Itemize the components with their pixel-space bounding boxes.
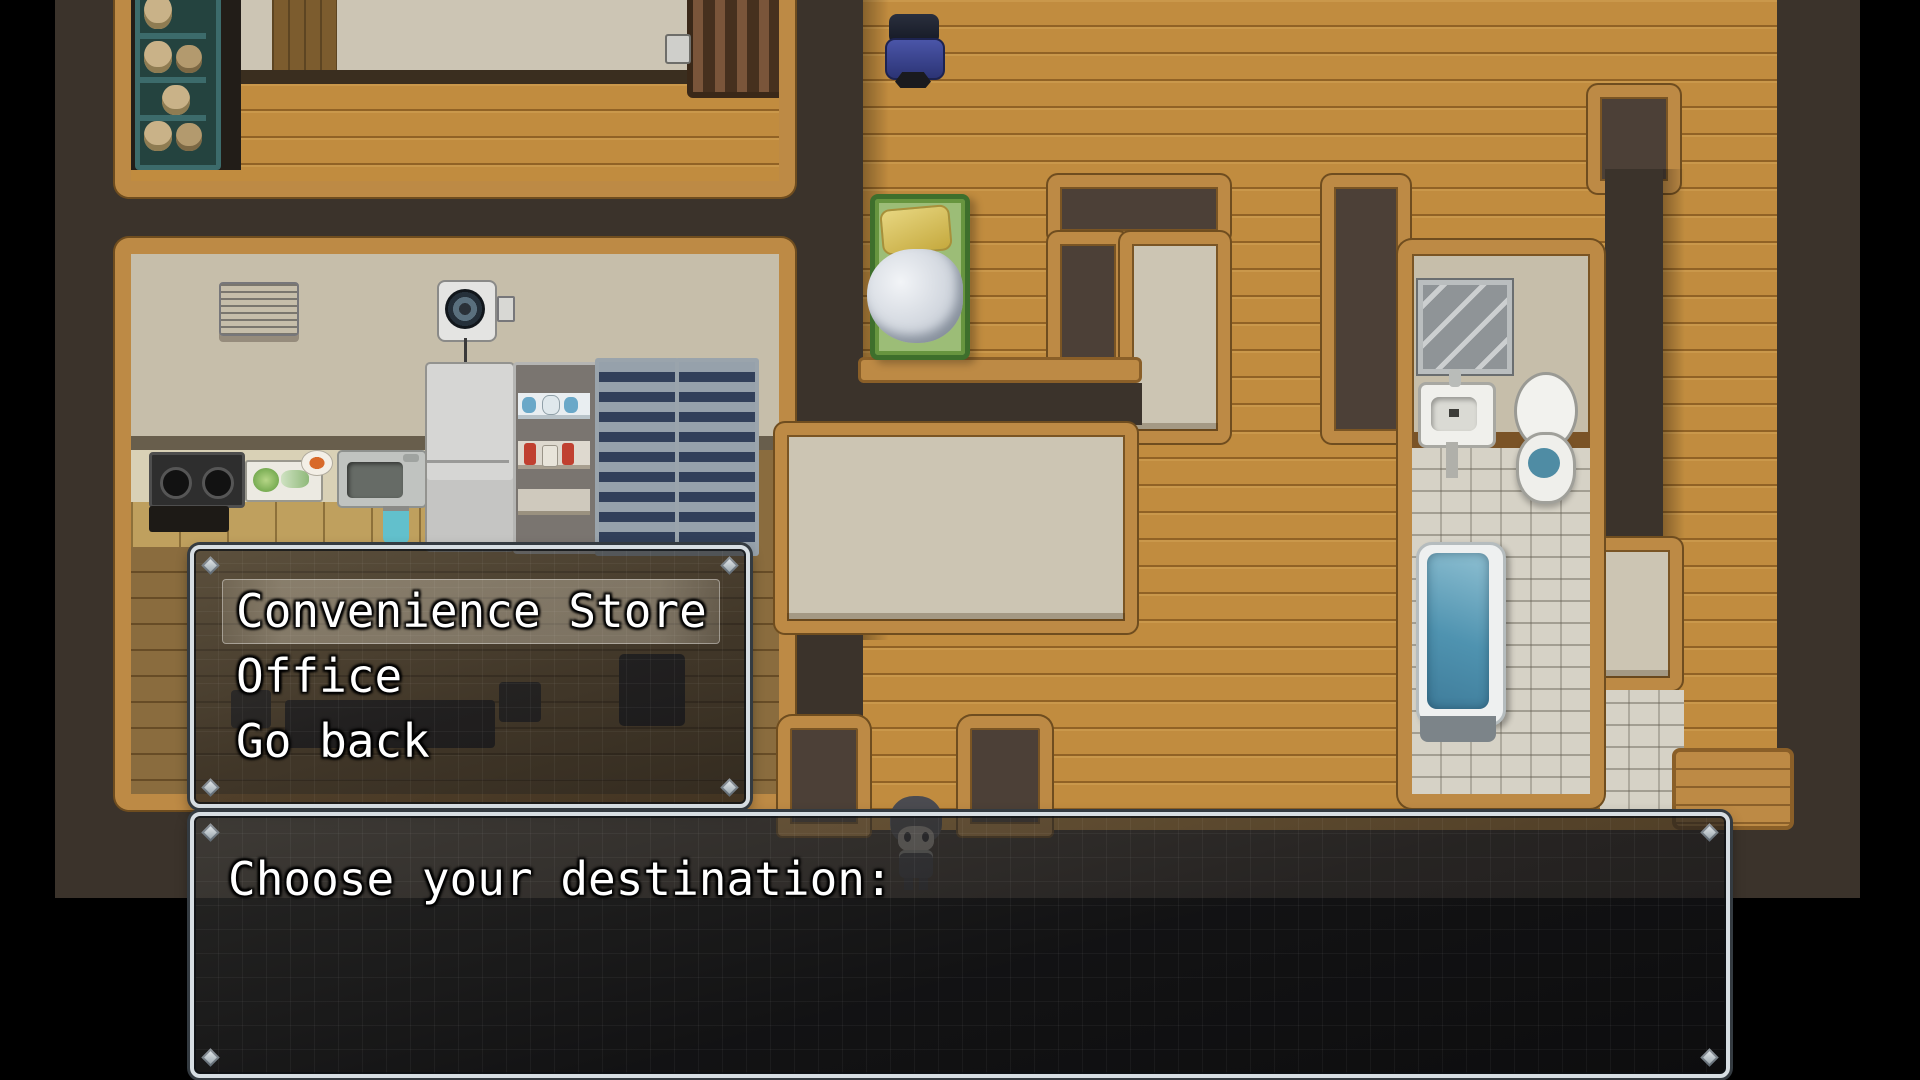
fan-blades: [445, 289, 485, 329]
choice-option-go-back[interactable]: Go back: [222, 709, 720, 774]
display-cabinet: [595, 358, 679, 556]
shelf-sack: [144, 0, 172, 29]
window-corner-ornament: [720, 778, 738, 796]
choice-window[interactable]: Convenience Store Office Go back: [190, 545, 750, 808]
shelf-sack: [144, 41, 172, 73]
stove-burner: [202, 467, 234, 499]
wooden-crib: [687, 0, 791, 98]
back-door: [272, 0, 337, 70]
hand-sink: [1418, 382, 1496, 448]
cup: [564, 397, 578, 413]
shelf-bar: [140, 115, 206, 121]
stove-burner: [160, 467, 192, 499]
window-corner-ornament: [1700, 1048, 1718, 1066]
hand-towel: [383, 506, 409, 543]
window-corner-ornament: [720, 556, 738, 574]
shelf-sack: [144, 121, 172, 151]
shelf-bar: [140, 77, 206, 83]
bath-water: [1427, 553, 1489, 709]
central-wall-block: [775, 423, 1137, 633]
fan-outlet: [497, 296, 515, 322]
air-conditioner: [219, 282, 299, 336]
red-bottle: [524, 443, 536, 465]
window-corner-ornament: [201, 556, 219, 574]
wall-outlet: [665, 34, 691, 64]
bathtub: [1416, 542, 1506, 726]
cup: [542, 395, 560, 415]
cup: [522, 397, 536, 413]
window-corner-ornament: [201, 1048, 219, 1066]
bed: [870, 194, 970, 360]
toilet-water: [1528, 448, 1560, 478]
blanket: [867, 249, 963, 343]
food-plate: [301, 450, 333, 476]
gas-stove: [149, 452, 245, 508]
wall-right-beige: [1592, 538, 1682, 690]
fan-cord: [464, 338, 467, 364]
drain-dot: [1449, 409, 1459, 417]
sink-basin: [347, 462, 403, 498]
display-cabinet: [675, 358, 759, 556]
shelf-row: [518, 489, 590, 515]
jar: [542, 445, 558, 467]
window-corner-ornament: [201, 778, 219, 796]
office-chair: [885, 14, 943, 90]
message-window[interactable]: Choose your destination:: [190, 812, 1730, 1078]
bathroom: [1398, 240, 1604, 808]
game-screen: Convenience Store Office Go back Choose …: [0, 0, 1920, 1080]
cabbage: [253, 468, 279, 492]
choice-list: Convenience Store Office Go back: [222, 579, 720, 774]
bed-room-edge: [858, 357, 1142, 383]
faucet: [403, 454, 419, 462]
shelf-bar: [140, 33, 206, 39]
dish-cabinet: [513, 362, 601, 554]
shelf-sack: [176, 45, 202, 73]
choice-option-office[interactable]: Office: [222, 644, 720, 709]
wall-bathroom-left-hook: [1322, 175, 1410, 443]
toilet: [1512, 372, 1576, 512]
ventilation-fan: [437, 280, 497, 342]
shelf-sack: [176, 123, 202, 151]
choice-option-convenience-store[interactable]: Convenience Store: [222, 579, 720, 644]
message-text: Choose your destination:: [228, 852, 893, 906]
kitchen-sink: [337, 450, 427, 508]
shelf-sack: [162, 85, 190, 115]
channel-shadow: [1663, 169, 1685, 538]
oven-front: [149, 506, 229, 532]
right-channel: [1605, 169, 1663, 538]
window-corner-ornament: [201, 823, 219, 841]
wall-gap: [797, 383, 1142, 425]
refrigerator: [425, 362, 515, 552]
bathtub-base: [1420, 716, 1496, 742]
sink-faucet: [1449, 369, 1461, 387]
red-bottle: [562, 443, 574, 465]
vegetable: [281, 470, 309, 488]
sink-pipe: [1446, 442, 1458, 478]
wall-mirror: [1418, 280, 1512, 374]
chair-base: [895, 72, 931, 88]
fridge-divider: [427, 460, 509, 463]
window-corner-ornament: [1700, 823, 1718, 841]
storage-room: [115, 0, 795, 197]
storage-shelf: [135, 0, 221, 170]
